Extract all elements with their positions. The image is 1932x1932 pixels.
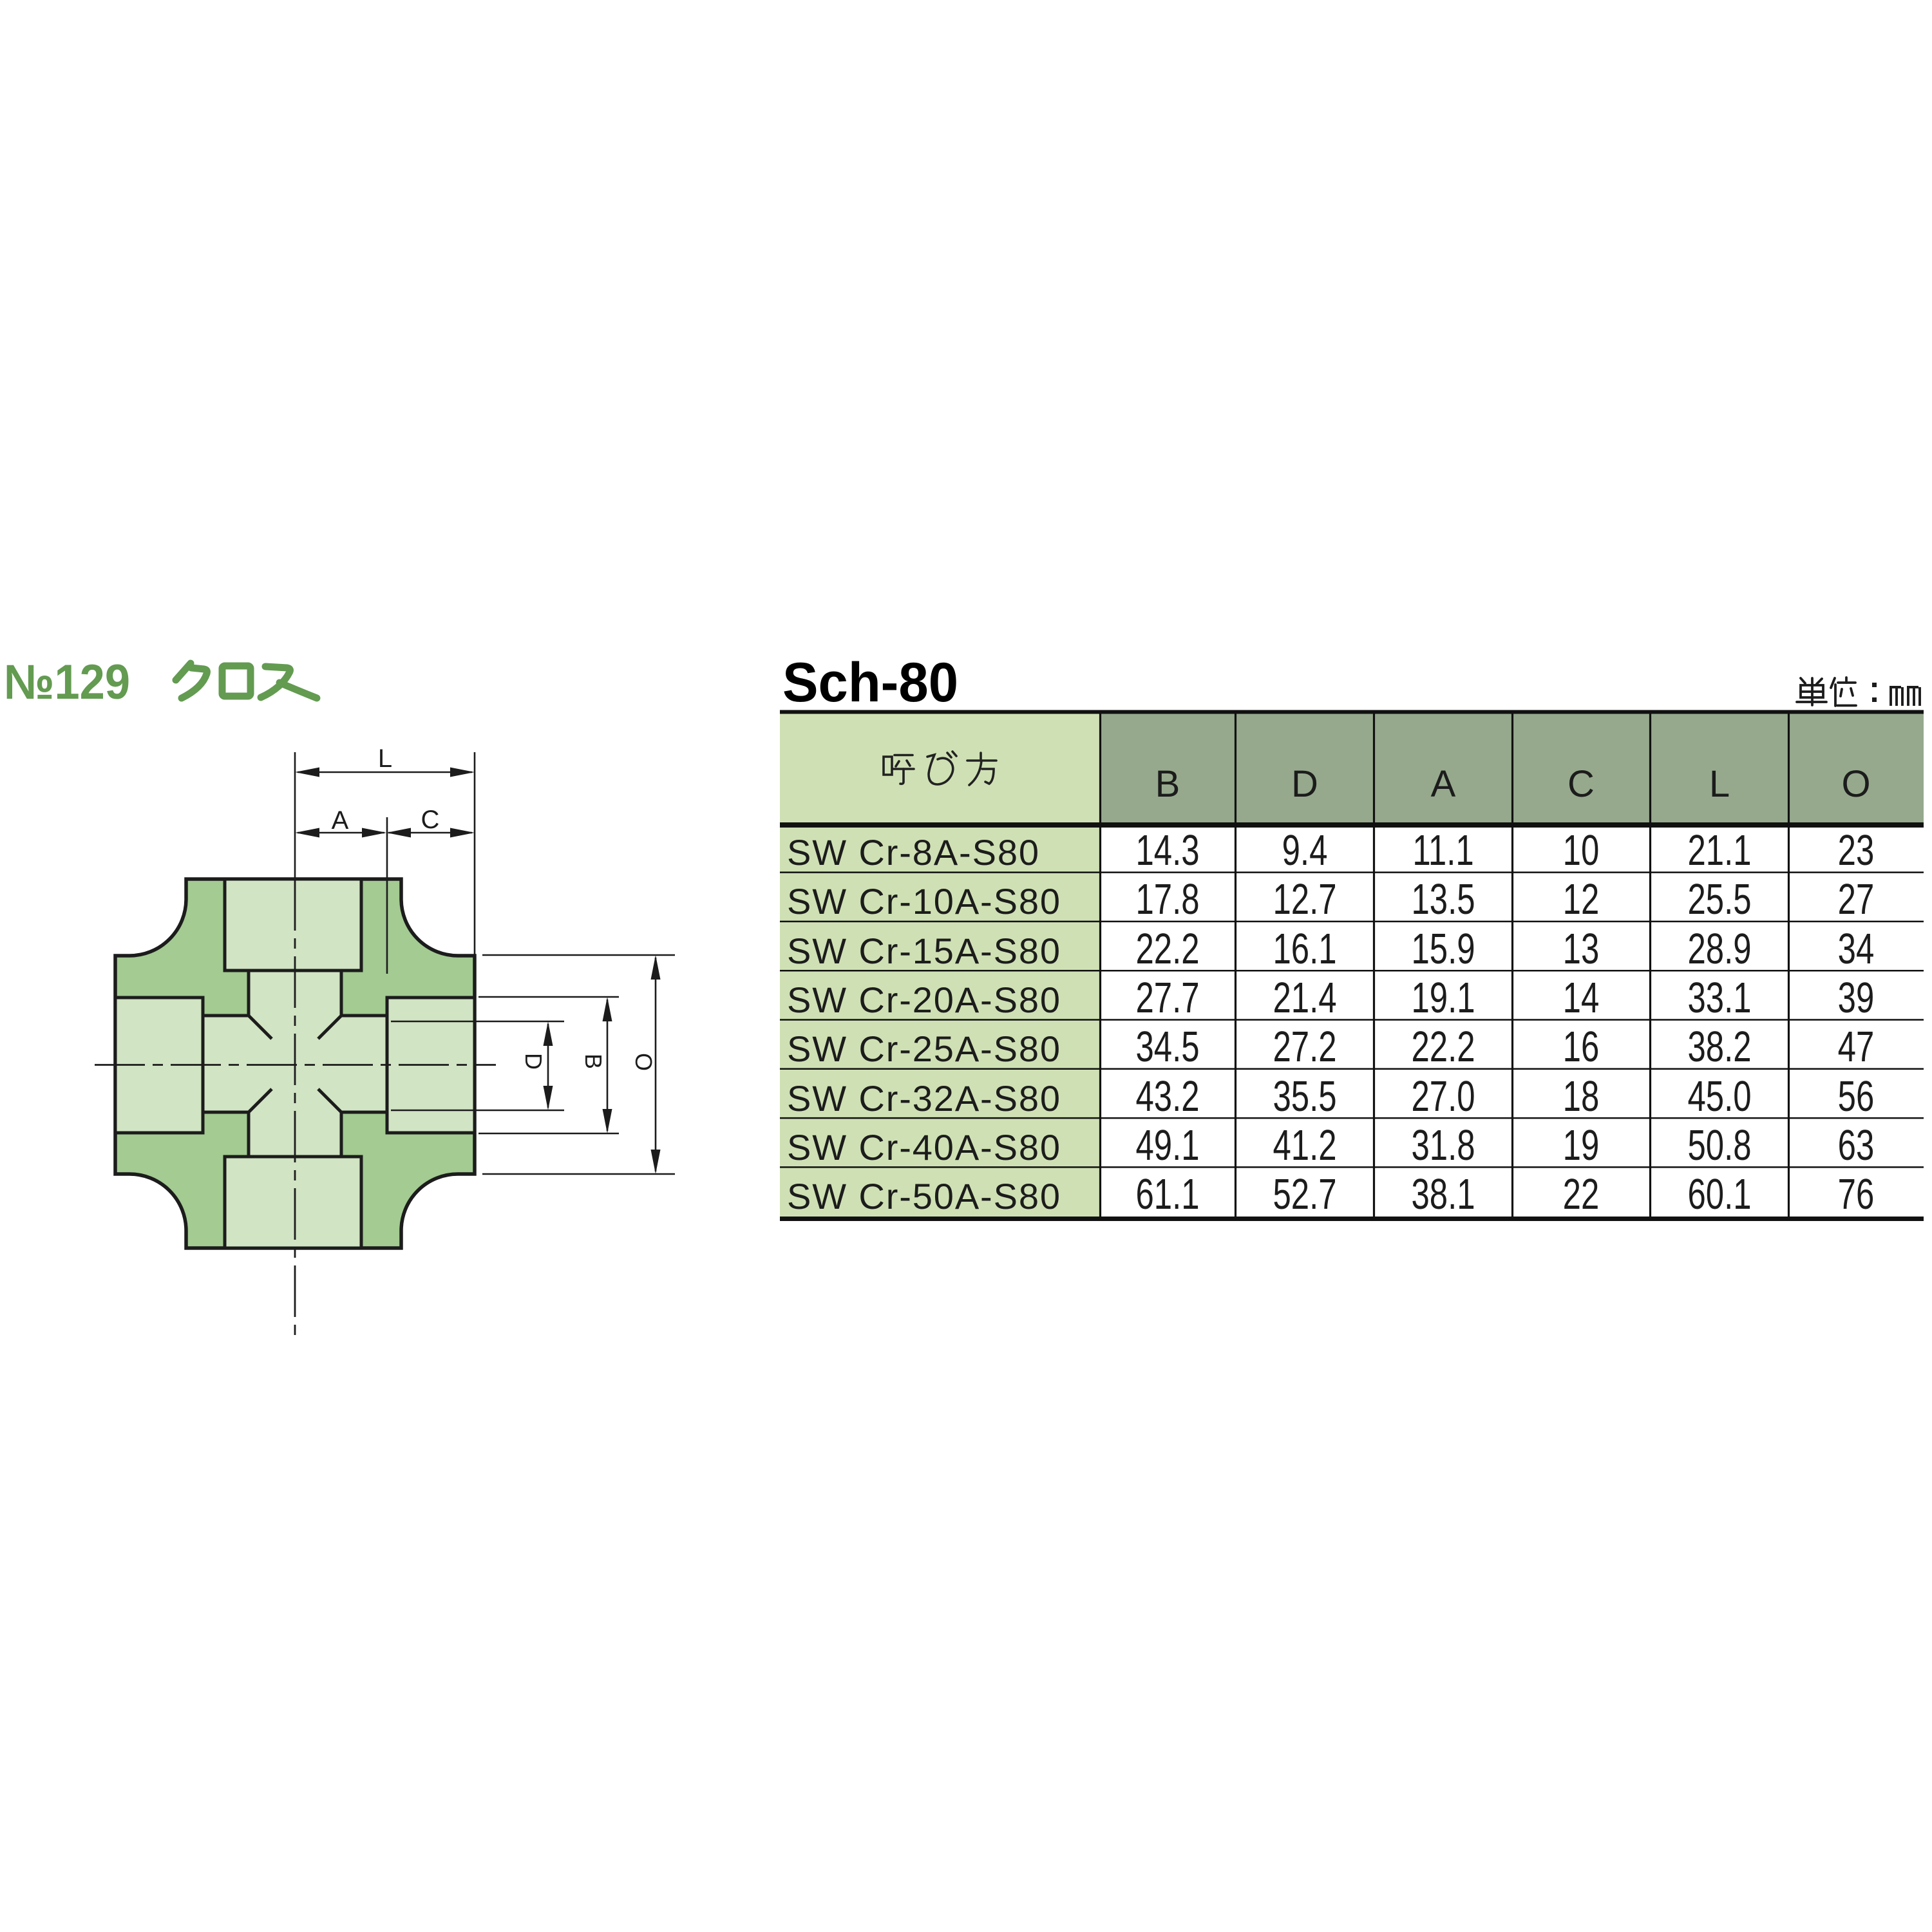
svg-text:19: 19 xyxy=(1563,1121,1600,1169)
svg-text:13: 13 xyxy=(1563,924,1600,972)
svg-text:27.0: 27.0 xyxy=(1411,1072,1475,1120)
svg-text:18: 18 xyxy=(1563,1072,1600,1120)
svg-text:C: C xyxy=(421,806,440,834)
svg-text:O: O xyxy=(630,1053,657,1071)
svg-text:31.8: 31.8 xyxy=(1411,1121,1475,1169)
svg-text:13.5: 13.5 xyxy=(1411,875,1475,923)
svg-text:15.9: 15.9 xyxy=(1411,924,1475,972)
svg-text:12.7: 12.7 xyxy=(1273,875,1336,923)
svg-text:76: 76 xyxy=(1838,1170,1875,1218)
svg-text:52.7: 52.7 xyxy=(1273,1170,1336,1218)
svg-text:38.2: 38.2 xyxy=(1687,1022,1751,1070)
svg-text:47: 47 xyxy=(1838,1022,1875,1070)
svg-text:SW Cr-32A-S80: SW Cr-32A-S80 xyxy=(787,1078,1060,1119)
svg-text:27.2: 27.2 xyxy=(1273,1022,1336,1070)
svg-text:L: L xyxy=(1709,763,1730,805)
svg-text:19.1: 19.1 xyxy=(1411,973,1475,1021)
svg-text:22.2: 22.2 xyxy=(1135,924,1199,972)
svg-text:17.8: 17.8 xyxy=(1135,875,1199,923)
svg-text:27.7: 27.7 xyxy=(1135,973,1199,1021)
svg-text:SW Cr-10A-S80: SW Cr-10A-S80 xyxy=(787,881,1060,922)
svg-text:SW Cr-20A-S80: SW Cr-20A-S80 xyxy=(787,980,1060,1020)
svg-text:SW Cr-8A-S80: SW Cr-8A-S80 xyxy=(787,832,1039,873)
svg-text:L: L xyxy=(378,744,392,773)
svg-text:B: B xyxy=(580,1054,607,1069)
svg-text:23: 23 xyxy=(1838,826,1875,874)
svg-text:14.3: 14.3 xyxy=(1135,826,1199,874)
svg-text:41.2: 41.2 xyxy=(1273,1121,1336,1169)
svg-text:A: A xyxy=(1431,763,1456,805)
svg-text:10: 10 xyxy=(1563,826,1600,874)
svg-text:34: 34 xyxy=(1838,924,1875,972)
svg-text:SW Cr-15A-S80: SW Cr-15A-S80 xyxy=(787,931,1060,971)
svg-text:38.1: 38.1 xyxy=(1411,1170,1475,1218)
svg-text:9.4: 9.4 xyxy=(1282,826,1328,874)
svg-text:SW Cr-40A-S80: SW Cr-40A-S80 xyxy=(787,1127,1060,1168)
svg-text:12: 12 xyxy=(1563,875,1600,923)
svg-text:60.1: 60.1 xyxy=(1687,1170,1751,1218)
svg-text:45.0: 45.0 xyxy=(1687,1072,1751,1120)
svg-text:A: A xyxy=(332,806,349,835)
svg-text:21.4: 21.4 xyxy=(1273,973,1336,1021)
svg-text:D: D xyxy=(520,1053,547,1070)
svg-text:SW Cr-25A-S80: SW Cr-25A-S80 xyxy=(787,1028,1060,1069)
svg-text:27: 27 xyxy=(1838,875,1875,923)
svg-text:35.5: 35.5 xyxy=(1273,1072,1336,1120)
svg-text:D: D xyxy=(1291,763,1318,805)
svg-text:56: 56 xyxy=(1838,1072,1875,1120)
svg-text:16.1: 16.1 xyxy=(1273,924,1336,972)
svg-text:43.2: 43.2 xyxy=(1135,1072,1199,1120)
svg-text:25.5: 25.5 xyxy=(1687,875,1751,923)
svg-text:50.8: 50.8 xyxy=(1687,1121,1751,1169)
svg-text:63: 63 xyxy=(1838,1121,1875,1169)
svg-text:№129: №129 xyxy=(4,655,130,710)
svg-text:22: 22 xyxy=(1563,1170,1600,1218)
svg-text:B: B xyxy=(1155,763,1180,805)
svg-text:61.1: 61.1 xyxy=(1135,1170,1199,1218)
svg-text:SW Cr-50A-S80: SW Cr-50A-S80 xyxy=(787,1176,1060,1217)
svg-text:Sch-80: Sch-80 xyxy=(782,652,958,714)
svg-text:34.5: 34.5 xyxy=(1135,1022,1199,1070)
svg-text:33.1: 33.1 xyxy=(1687,973,1751,1021)
svg-text:39: 39 xyxy=(1838,973,1875,1021)
svg-text:28.9: 28.9 xyxy=(1687,924,1751,972)
svg-text:O: O xyxy=(1841,763,1870,805)
svg-text:22.2: 22.2 xyxy=(1411,1022,1475,1070)
svg-text:49.1: 49.1 xyxy=(1135,1121,1199,1169)
svg-text:16: 16 xyxy=(1563,1022,1600,1070)
svg-text:C: C xyxy=(1567,763,1595,805)
svg-text:14: 14 xyxy=(1563,973,1600,1021)
svg-text:21.1: 21.1 xyxy=(1687,826,1751,874)
svg-text:11.1: 11.1 xyxy=(1412,826,1473,874)
